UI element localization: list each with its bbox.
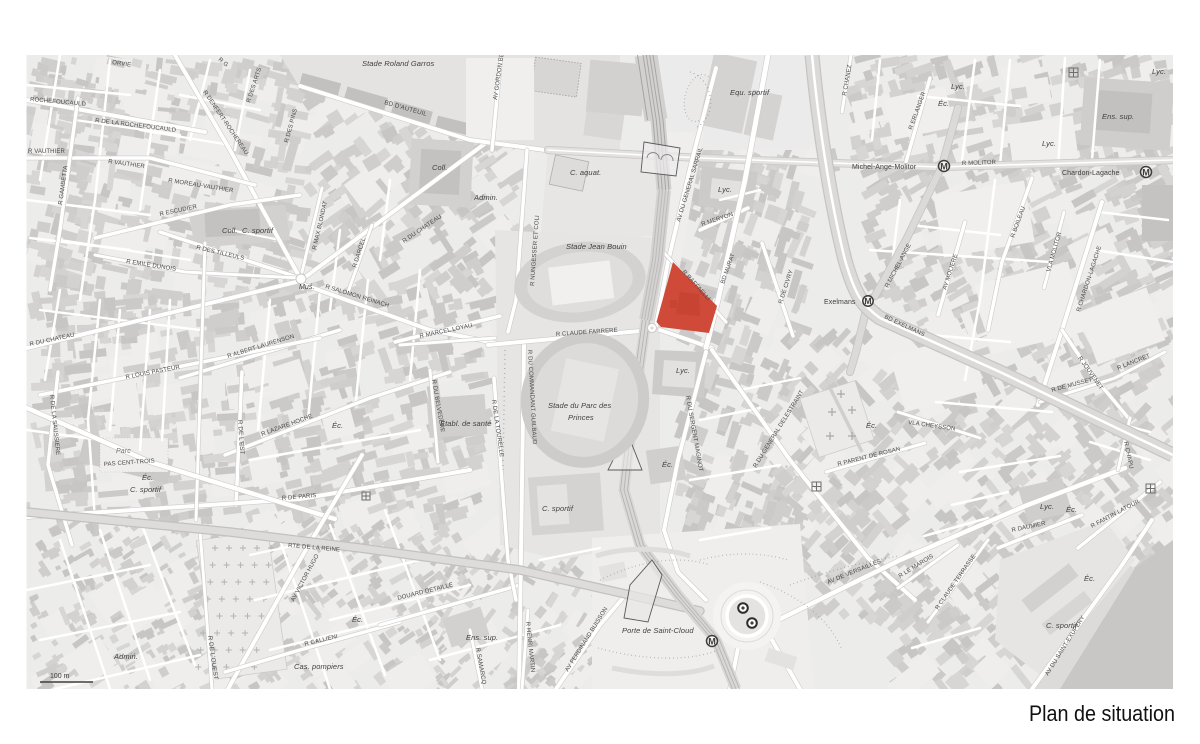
svg-text:Muś.: Muś. bbox=[299, 284, 315, 291]
svg-text:Cas. pompiers: Cas. pompiers bbox=[294, 662, 344, 671]
svg-text:C. sportif: C. sportif bbox=[1046, 621, 1078, 630]
svg-text:Lyc.: Lyc. bbox=[1040, 502, 1054, 511]
svg-text:Ens. sup.: Ens. sup. bbox=[1102, 112, 1134, 121]
svg-text:Parc: Parc bbox=[116, 448, 131, 455]
svg-text:Éc.: Éc. bbox=[938, 99, 949, 108]
svg-text:Lyc.: Lyc. bbox=[676, 366, 690, 375]
svg-text:M: M bbox=[1142, 167, 1150, 177]
svg-text:M: M bbox=[708, 636, 716, 646]
svg-text:Coll.: Coll. bbox=[222, 226, 238, 235]
svg-text:Equ. sportif: Equ. sportif bbox=[730, 88, 770, 97]
svg-text:C. sportif: C. sportif bbox=[542, 504, 574, 513]
svg-text:Porte de Saint-Cloud: Porte de Saint-Cloud bbox=[622, 626, 694, 635]
svg-text:M: M bbox=[864, 296, 871, 306]
svg-text:Admiń.: Admiń. bbox=[113, 652, 138, 661]
svg-text:Coll.: Coll. bbox=[432, 163, 448, 172]
svg-text:Chardon-Lagache: Chardon-Lagache bbox=[1062, 170, 1120, 177]
svg-text:Michel-Ange-Molitor: Michel-Ange-Molitor bbox=[852, 164, 917, 171]
svg-text:Lyc.: Lyc. bbox=[718, 185, 732, 194]
svg-text:Plan de situation: Plan de situation bbox=[1029, 701, 1175, 726]
svg-text:Lyc.: Lyc. bbox=[1152, 67, 1166, 76]
svg-text:Princes: Princes bbox=[568, 413, 594, 422]
svg-text:Stade Roland Garros: Stade Roland Garros bbox=[362, 59, 435, 68]
svg-text:R MOLITOR: R MOLITOR bbox=[962, 160, 997, 167]
svg-text:R VAUTHIER: R VAUTHIER bbox=[28, 149, 65, 155]
svg-text:Éc.: Éc. bbox=[1084, 574, 1095, 583]
svg-text:M: M bbox=[940, 161, 948, 171]
svg-text:Exelmans: Exelmans bbox=[824, 299, 856, 306]
svg-text:100 m: 100 m bbox=[50, 673, 70, 680]
svg-text:Éc.: Éc. bbox=[866, 421, 877, 430]
svg-text:Stade Jean Bouin: Stade Jean Bouin bbox=[566, 242, 627, 251]
svg-text:Éc.: Éc. bbox=[142, 473, 153, 482]
svg-text:C. sportif: C. sportif bbox=[242, 226, 274, 235]
svg-text:C. sportif: C. sportif bbox=[130, 485, 162, 494]
svg-text:Éc.: Éc. bbox=[332, 421, 343, 430]
svg-text:Éc.: Éc. bbox=[1066, 505, 1077, 514]
svg-text:C. aquat.: C. aquat. bbox=[570, 168, 601, 177]
svg-text:Stade du Parc des: Stade du Parc des bbox=[548, 401, 612, 410]
svg-text:Lyc.: Lyc. bbox=[951, 82, 965, 91]
svg-text:Admin.: Admin. bbox=[473, 193, 498, 202]
svg-text:Éc.: Éc. bbox=[662, 460, 673, 469]
svg-text:Ens. sup.: Ens. sup. bbox=[466, 633, 498, 642]
svg-text:Éc.: Éc. bbox=[352, 615, 363, 624]
svg-text:Lyc.: Lyc. bbox=[1042, 139, 1056, 148]
svg-text:Établ. de santé: Établ. de santé bbox=[440, 419, 492, 428]
